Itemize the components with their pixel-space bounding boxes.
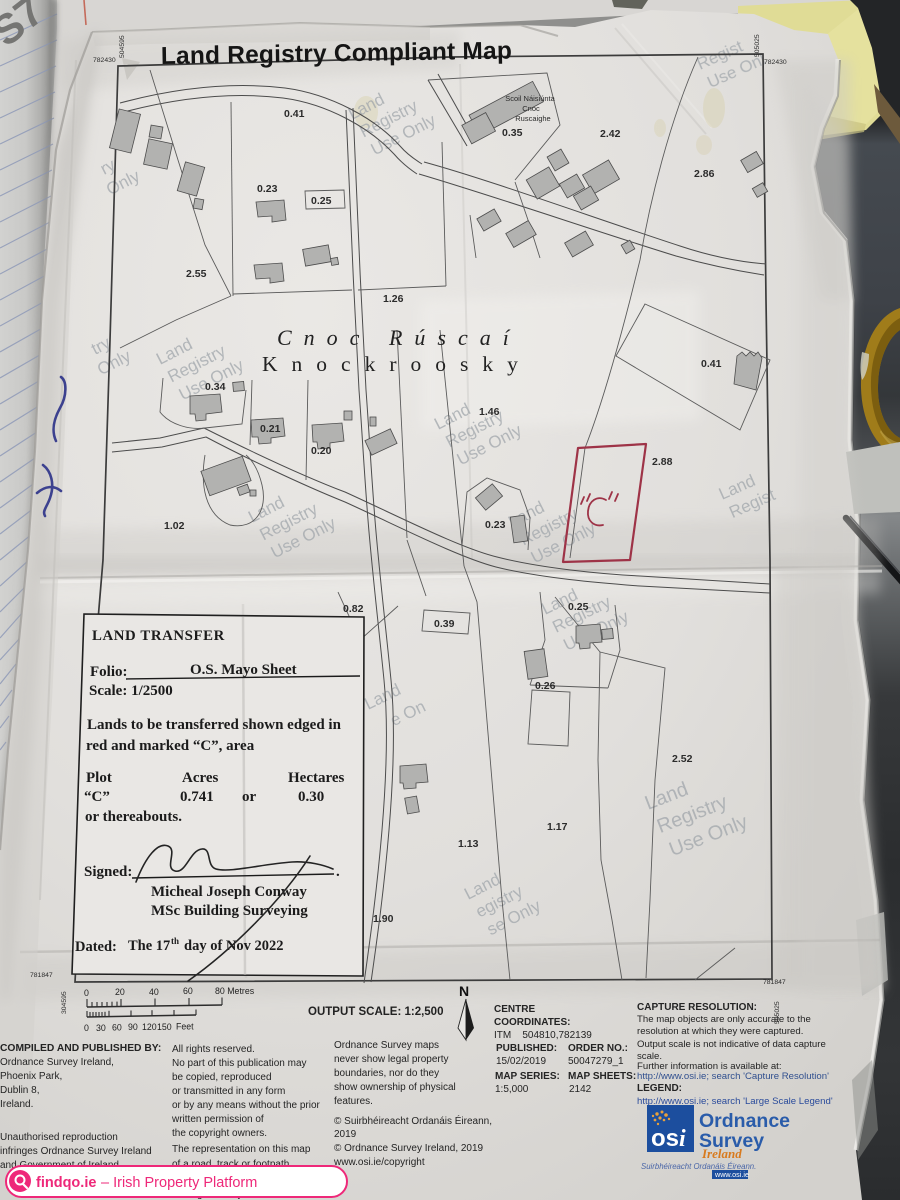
svg-text:0.41: 0.41 [701, 358, 722, 370]
svg-text:80 Metres: 80 Metres [215, 986, 255, 996]
svg-text:30: 30 [96, 1023, 106, 1033]
svg-text:1.17: 1.17 [547, 821, 568, 833]
svg-text:ORDER NO.:: ORDER NO.: [568, 1043, 628, 1054]
svg-text:written permission of: written permission of [171, 1114, 264, 1125]
svg-text:90: 90 [128, 1022, 138, 1032]
svg-text:Ordnance Survey maps: Ordnance Survey maps [334, 1040, 439, 1051]
svg-text:os: os [651, 1125, 679, 1152]
svg-text:or by any means without the pr: or by any means without the prior [172, 1100, 321, 1111]
svg-text:504595: 504595 [119, 35, 126, 58]
svg-text:MAP SERIES:: MAP SERIES: [495, 1071, 560, 1082]
svg-text:Ordnance Survey Ireland,: Ordnance Survey Ireland, [0, 1057, 114, 1068]
svg-text:1.26: 1.26 [383, 293, 404, 305]
svg-text:40: 40 [149, 987, 159, 997]
svg-text:0.35: 0.35 [502, 127, 523, 139]
svg-text:Acres: Acres [182, 770, 219, 786]
svg-text:Land Registry Compliant Map: Land Registry Compliant Map [161, 37, 513, 70]
svg-text:15/02/2019: 15/02/2019 [496, 1056, 546, 1067]
svg-text:782430: 782430 [764, 59, 787, 66]
svg-text:Cnoc Rúscaí: Cnoc Rúscaí [277, 325, 521, 350]
svg-text:2.86: 2.86 [694, 168, 715, 180]
svg-text:The 17: The 17 [128, 938, 170, 954]
svg-text:0.21: 0.21 [260, 423, 281, 435]
svg-text:0: 0 [84, 988, 89, 998]
svg-text:0.39: 0.39 [434, 618, 455, 630]
svg-text:O.S. Mayo Sheet: O.S. Mayo Sheet [190, 662, 297, 678]
svg-text:2.88: 2.88 [652, 456, 673, 468]
svg-text:OUTPUT SCALE: 1:2,500: OUTPUT SCALE: 1:2,500 [308, 1006, 443, 1018]
svg-text:boundaries, nor do they: boundaries, nor do they [334, 1068, 439, 1079]
svg-text:Unauthorised reproduction: Unauthorised reproduction [0, 1132, 118, 1143]
svg-text:– Irish Property Platform: – Irish Property Platform [101, 1175, 257, 1191]
svg-text:.: . [336, 864, 340, 880]
svg-text:the copyright owners.: the copyright owners. [172, 1128, 267, 1139]
svg-text:2.55: 2.55 [186, 268, 207, 280]
svg-text:Dated:: Dated: [75, 939, 117, 955]
svg-text:resolution at which they were: resolution at which they were captured. [637, 1026, 803, 1037]
svg-text:LAND TRANSFER: LAND TRANSFER [92, 628, 225, 644]
svg-text:505025: 505025 [754, 34, 761, 57]
svg-text:LEGEND:: LEGEND: [637, 1083, 682, 1094]
svg-text:Scoil Náisiúnta: Scoil Náisiúnta [505, 94, 555, 103]
svg-text:N: N [459, 983, 469, 999]
svg-text:COMPILED AND PUBLISHED BY:: COMPILED AND PUBLISHED BY: [0, 1043, 161, 1054]
svg-text:Signed:: Signed: [84, 864, 132, 880]
svg-text:Cnoc: Cnoc [522, 104, 540, 113]
svg-text:CAPTURE RESOLUTION:: CAPTURE RESOLUTION: [637, 1002, 757, 1013]
svg-text:2019: 2019 [334, 1129, 357, 1140]
svg-text:0.82: 0.82 [343, 603, 364, 615]
svg-text:0.741: 0.741 [180, 789, 214, 805]
svg-text:MSc Building Surveying: MSc Building Surveying [151, 903, 308, 919]
svg-text:0.30: 0.30 [298, 789, 324, 805]
svg-text:COORDINATES:: COORDINATES: [494, 1017, 570, 1028]
svg-text:PUBLISHED:: PUBLISHED: [496, 1043, 557, 1054]
svg-text:0: 0 [84, 1023, 89, 1033]
svg-text:day of Nov 2022: day of Nov 2022 [184, 938, 284, 954]
svg-text:60: 60 [183, 986, 193, 996]
svg-text:show ownership of physical: show ownership of physical [334, 1082, 456, 1093]
svg-text:Phoenix Park,: Phoenix Park, [0, 1071, 62, 1082]
svg-text:Feet: Feet [176, 1022, 194, 1032]
svg-text:© Ordnance Survey Ireland, 20: © Ordnance Survey Ireland, 2019 [334, 1143, 484, 1154]
svg-text:1.13: 1.13 [458, 838, 479, 850]
svg-text:Ordnance: Ordnance [699, 1110, 790, 1132]
svg-text:2142: 2142 [569, 1084, 592, 1095]
svg-text:ITM 504810,782139: ITM 504810,782139 [494, 1030, 592, 1041]
svg-text:1.90: 1.90 [373, 913, 394, 925]
svg-text:All rights reserved.: All rights reserved. [172, 1044, 255, 1055]
svg-text:CENTRE: CENTRE [494, 1004, 535, 1015]
svg-text:0.20: 0.20 [311, 445, 332, 457]
svg-text:Lands to be transferred shown: Lands to be transferred shown edged in [87, 717, 342, 733]
svg-text:or: or [242, 789, 257, 805]
svg-text:0.25: 0.25 [311, 195, 332, 207]
svg-text:Hectares: Hectares [288, 770, 345, 786]
svg-text:The map objects are only accur: The map objects are only accurate to the [637, 1014, 811, 1025]
svg-text:781847: 781847 [30, 972, 53, 979]
svg-text:0.34: 0.34 [205, 381, 226, 393]
svg-text:0.41: 0.41 [284, 108, 305, 120]
svg-text:150: 150 [157, 1022, 172, 1032]
svg-text:Scale: 1/2500: Scale: 1/2500 [89, 683, 173, 699]
svg-text:i: i [679, 1126, 686, 1152]
svg-text:304595: 304595 [61, 991, 68, 1014]
svg-text:0.26: 0.26 [535, 680, 556, 692]
svg-text:60: 60 [112, 1023, 122, 1033]
svg-text:0.23: 0.23 [485, 519, 506, 531]
svg-text:be copied, reproduced: be copied, reproduced [172, 1072, 272, 1083]
svg-text:http://www.osi.ie; search 'Cap: http://www.osi.ie; search 'Capture Resol… [637, 1071, 829, 1082]
svg-text:781847: 781847 [763, 979, 786, 986]
svg-text:never show legal property: never show legal property [334, 1054, 449, 1065]
svg-text:Ireland.: Ireland. [0, 1099, 33, 1110]
svg-text:Ruscaighe: Ruscaighe [515, 114, 550, 123]
svg-text:“C”: “C” [84, 789, 110, 805]
svg-text:red and marked “C”, area: red and marked “C”, area [86, 738, 255, 754]
svg-text:120: 120 [142, 1022, 157, 1032]
svg-text:2.52: 2.52 [672, 753, 693, 765]
svg-text:The representation on this map: The representation on this map [172, 1144, 311, 1155]
svg-text:features.: features. [334, 1096, 373, 1107]
svg-text:20: 20 [115, 987, 125, 997]
svg-text:www.osi.ie/copyright: www.osi.ie/copyright [333, 1157, 425, 1168]
svg-text:Output scale is not indicative: Output scale is not indicative of data c… [637, 1039, 826, 1050]
svg-text:No part of this publication ma: No part of this publication may [172, 1058, 307, 1069]
svg-text:Dublin 8,: Dublin 8, [0, 1085, 39, 1096]
svg-text:or transmitted in any form: or transmitted in any form [172, 1086, 285, 1097]
svg-text:2.42: 2.42 [600, 128, 621, 140]
svg-text:www.osi.ie: www.osi.ie [714, 1170, 749, 1179]
svg-text:0.25: 0.25 [568, 601, 589, 613]
svg-text:50047279_1: 50047279_1 [568, 1056, 624, 1067]
svg-text:© Suirbhéireacht Ordanáis Éire: © Suirbhéireacht Ordanáis Éireann, [334, 1114, 492, 1127]
svg-text:Ireland: Ireland [701, 1146, 742, 1161]
svg-text:th: th [171, 936, 179, 946]
svg-text:findqo.ie: findqo.ie [36, 1175, 96, 1191]
svg-text:Knockroosky: Knockroosky [262, 352, 532, 376]
svg-text:1.02: 1.02 [164, 520, 185, 532]
svg-text:Folio:: Folio: [90, 664, 128, 680]
svg-text:Plot: Plot [86, 770, 112, 786]
svg-text:0.23: 0.23 [257, 183, 278, 195]
svg-text:MAP SHEETS:: MAP SHEETS: [568, 1071, 636, 1082]
svg-text:infringes Ordnance Survey Irel: infringes Ordnance Survey Ireland [0, 1146, 152, 1157]
svg-text:1.46: 1.46 [479, 406, 500, 418]
svg-text:782430: 782430 [93, 57, 116, 64]
svg-text:1:5,000: 1:5,000 [495, 1084, 529, 1095]
svg-text:or thereabouts.: or thereabouts. [85, 809, 182, 825]
